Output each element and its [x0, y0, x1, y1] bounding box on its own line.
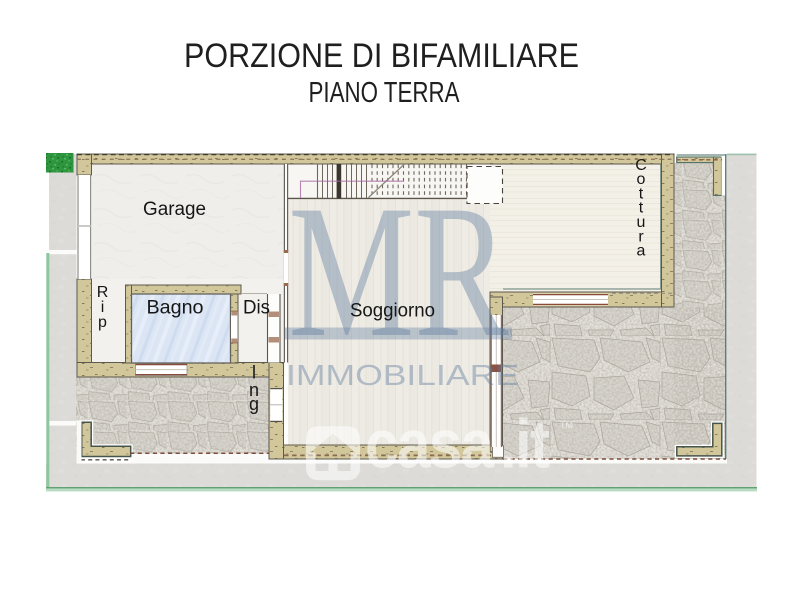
svg-text:Garage: Garage [143, 199, 206, 220]
svg-text:casa: casa [365, 405, 495, 483]
svg-text:IMMOBILIARE: IMMOBILIARE [286, 360, 519, 392]
svg-text:PIANO TERRA: PIANO TERRA [309, 77, 460, 109]
svg-text:p: p [98, 314, 107, 331]
svg-text:.it: .it [500, 405, 550, 483]
svg-text:MR: MR [288, 167, 508, 377]
svg-text:g: g [249, 394, 259, 414]
svg-text:Dis: Dis [243, 298, 270, 319]
svg-text:Bagno: Bagno [147, 298, 204, 319]
svg-text:TM: TM [560, 420, 573, 430]
svg-text:a: a [637, 243, 646, 260]
svg-text:PORZIONE DI BIFAMILIARE: PORZIONE DI BIFAMILIARE [184, 37, 579, 75]
svg-text:Soggiorno: Soggiorno [350, 301, 435, 322]
